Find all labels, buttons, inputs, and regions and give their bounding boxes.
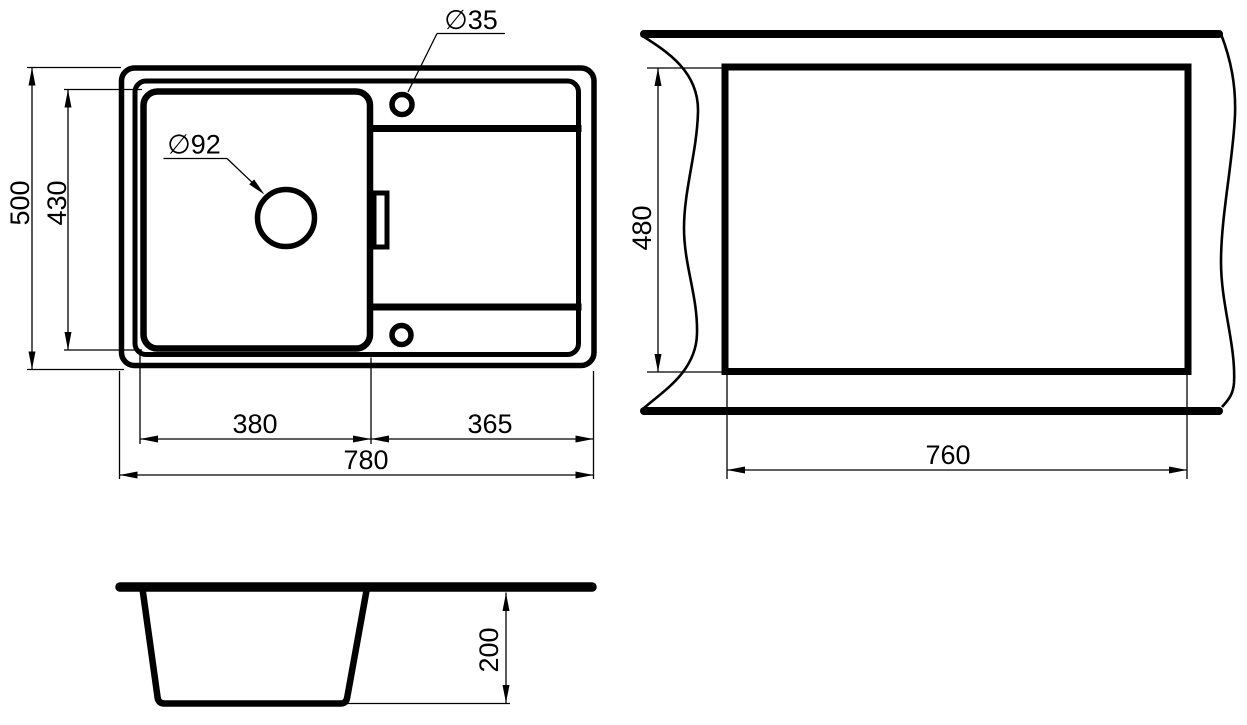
dimension-bowl-height: 200 xyxy=(347,593,510,704)
cutout-view: 480 760 xyxy=(627,34,1235,479)
dimension-bowl-width: 380 xyxy=(140,409,371,443)
overall-depth-value: 500 xyxy=(5,180,35,225)
arrow-right xyxy=(576,472,594,479)
arrow-left xyxy=(140,436,158,443)
drain-hole xyxy=(258,190,315,247)
arrow-right xyxy=(353,436,371,443)
cutout-depth-value: 480 xyxy=(627,205,657,250)
arrow-down xyxy=(503,685,510,703)
arrow-up xyxy=(503,593,510,611)
arrow-left xyxy=(371,436,389,443)
bowl-height-value: 200 xyxy=(474,627,504,672)
overall-width-value: 780 xyxy=(343,445,388,475)
bowl-depth-value: 430 xyxy=(42,180,72,225)
arrow-right xyxy=(576,436,594,443)
dimension-cutout-width: 760 xyxy=(727,374,1187,479)
bowl-section-profile xyxy=(143,589,367,704)
drain-diameter-label: ∅92 xyxy=(167,130,221,160)
bowl-width-value: 380 xyxy=(232,409,277,439)
arrow-right xyxy=(1169,467,1187,474)
arrow-down xyxy=(29,352,36,370)
secondary-hole xyxy=(392,326,411,345)
break-line-right xyxy=(1221,34,1235,407)
arrow-down xyxy=(655,354,662,372)
sink-dimension-drawing: ∅35 ∅92 500 430 xyxy=(0,0,1247,725)
faucet-diameter-label: ∅35 xyxy=(444,5,498,35)
arrow-up xyxy=(655,68,662,86)
cutout-rectangle xyxy=(725,67,1188,372)
arrow-down xyxy=(65,332,72,350)
arrow-left xyxy=(727,467,745,474)
top-view: ∅35 ∅92 500 430 xyxy=(5,5,594,479)
arrow-up xyxy=(29,68,36,86)
dimension-cutout-depth: 480 xyxy=(627,68,723,372)
arrow-left xyxy=(120,472,138,479)
cutout-width-value: 760 xyxy=(925,440,970,470)
dimension-drainboard-width: 365 xyxy=(371,409,594,443)
dimension-overall-width: 780 xyxy=(120,445,594,479)
section-view: 200 xyxy=(120,587,592,704)
faucet-hole xyxy=(392,95,412,115)
drainboard-width-value: 365 xyxy=(467,409,512,439)
overflow-tab xyxy=(374,193,387,247)
technical-drawing-page: ∅35 ∅92 500 430 xyxy=(0,0,1247,725)
arrow-up xyxy=(65,90,72,108)
